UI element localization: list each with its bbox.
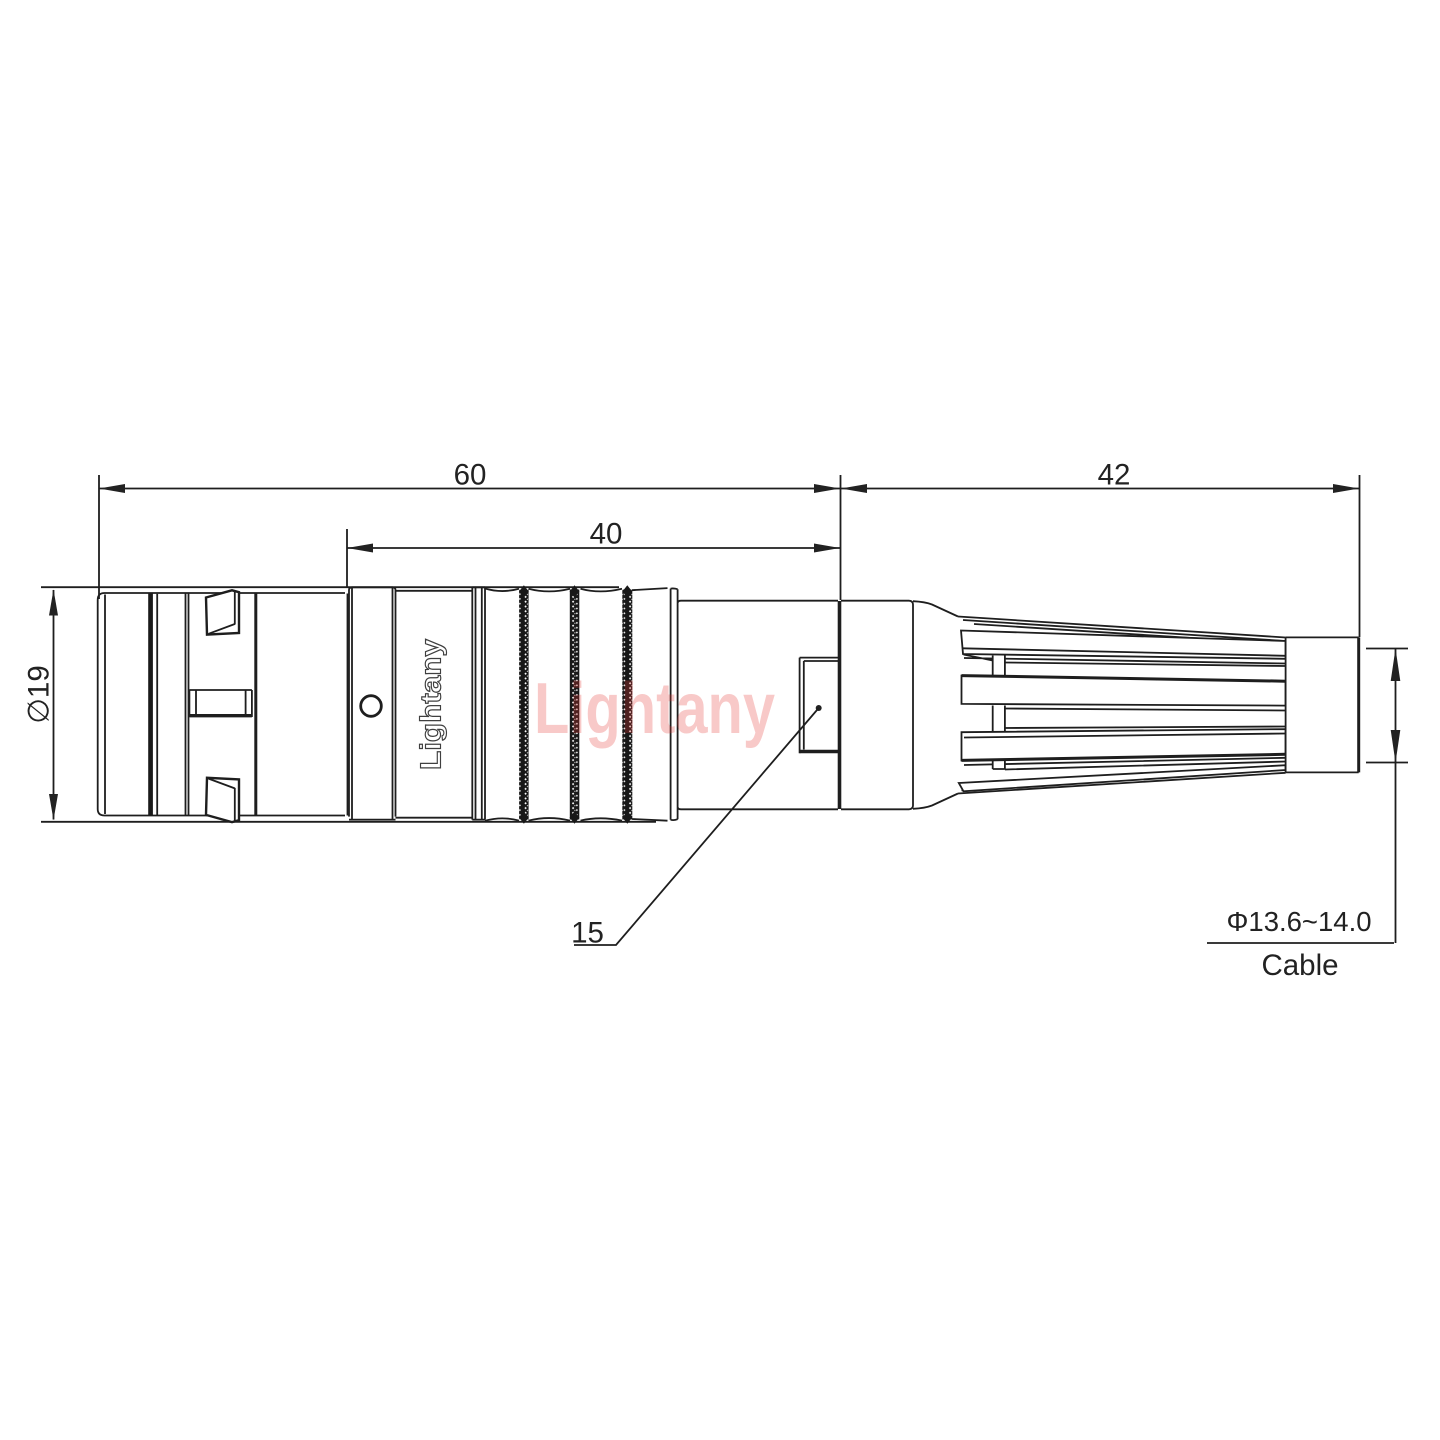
svg-text:∅19: ∅19 [23,665,56,724]
svg-text:60: 60 [454,459,487,492]
svg-text:Φ13.6~14.0: Φ13.6~14.0 [1226,906,1371,937]
svg-text:Cable: Cable [1261,949,1338,982]
svg-text:40: 40 [590,518,623,551]
svg-text:Lightany: Lightany [534,669,775,749]
svg-text:42: 42 [1098,459,1131,492]
svg-text:15: 15 [571,917,604,950]
svg-text:Lightany: Lightany [416,639,448,770]
